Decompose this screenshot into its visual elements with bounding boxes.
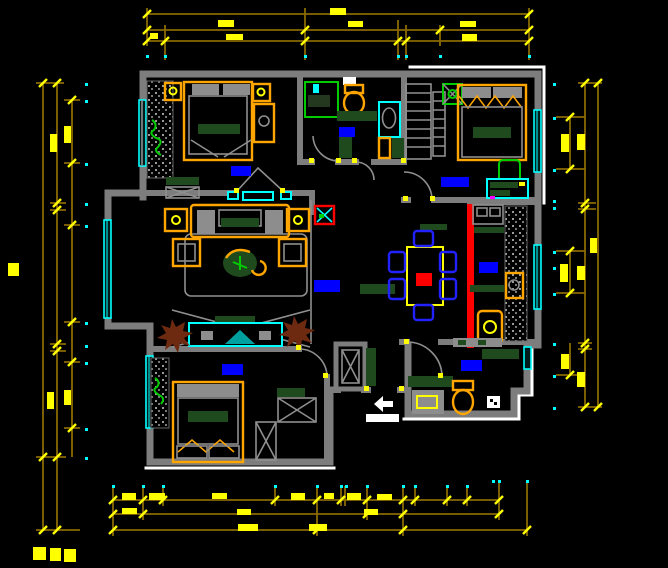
floor-drain xyxy=(487,396,500,408)
room-label xyxy=(441,177,469,187)
window-bedroom-top-left xyxy=(139,100,146,166)
room-label xyxy=(222,364,243,375)
decor-texture-wall xyxy=(151,358,169,428)
room-label xyxy=(479,262,498,273)
room-label xyxy=(231,166,251,176)
red-partition xyxy=(467,204,474,348)
window-bathroom-bottom xyxy=(524,347,531,369)
stove-row xyxy=(453,338,502,347)
room-label xyxy=(314,280,340,292)
window-living xyxy=(104,220,111,318)
desk xyxy=(487,179,528,199)
decor-texture-wall xyxy=(147,81,173,178)
entry-mat xyxy=(366,414,399,422)
washbasin-icon xyxy=(412,390,444,414)
room-label xyxy=(461,360,482,371)
window-kitchen xyxy=(534,245,541,309)
cad-canvas[interactable] xyxy=(0,0,668,568)
window-bedroom-top-right xyxy=(534,110,541,172)
room-label xyxy=(339,127,355,137)
shoe-sill xyxy=(228,192,291,200)
